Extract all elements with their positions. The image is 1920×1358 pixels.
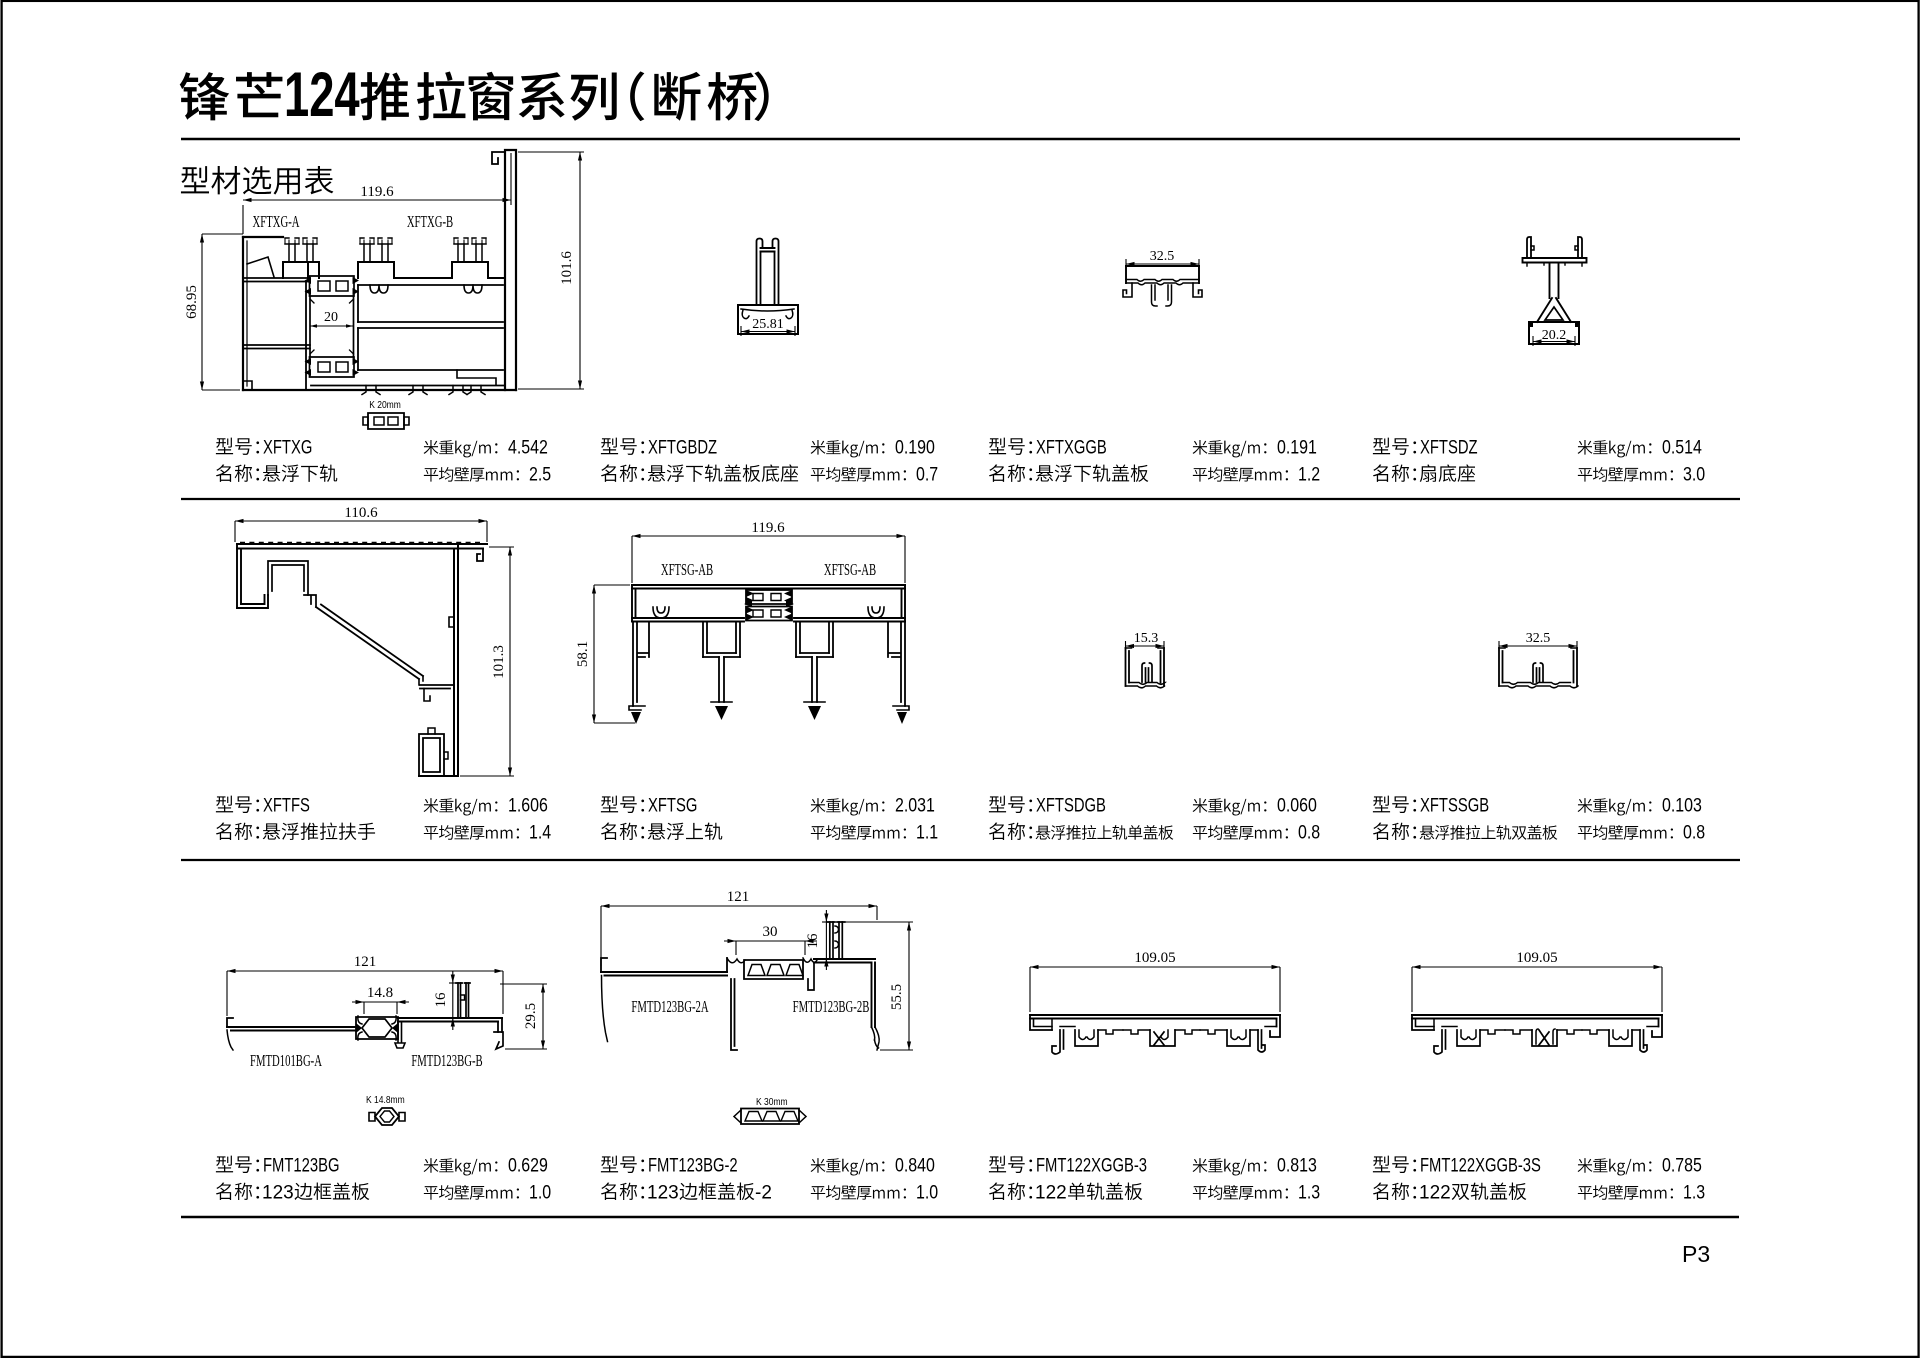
- svg-text:XFTSG-AB: XFTSG-AB: [661, 561, 713, 580]
- svg-text:119.6: 119.6: [360, 184, 394, 200]
- svg-text:XFTSG: XFTSG: [648, 795, 697, 816]
- svg-text:109.05: 109.05: [1516, 950, 1557, 966]
- svg-text:XFTFS: XFTFS: [263, 795, 310, 816]
- svg-text:101.6: 101.6: [559, 251, 575, 285]
- svg-text:2.5: 2.5: [529, 463, 551, 485]
- svg-text:101.3: 101.3: [491, 645, 507, 679]
- svg-text:P3: P3: [1682, 1241, 1710, 1267]
- svg-text:109.05: 109.05: [1134, 950, 1175, 966]
- svg-text:1.3: 1.3: [1683, 1181, 1705, 1203]
- svg-text:FMT123BG: FMT123BG: [263, 1155, 339, 1176]
- svg-text:FMT122XGGB-3: FMT122XGGB-3: [1036, 1155, 1147, 1176]
- svg-text:XFTSG-AB: XFTSG-AB: [824, 561, 876, 580]
- svg-text:2.031: 2.031: [895, 794, 935, 816]
- svg-text:XFTXG-A: XFTXG-A: [253, 213, 301, 232]
- svg-text:-2: -2: [755, 1183, 772, 1204]
- svg-text:123: 123: [647, 1183, 679, 1204]
- svg-text:FMT122XGGB-3S: FMT122XGGB-3S: [1420, 1155, 1541, 1176]
- svg-text:20: 20: [324, 310, 338, 325]
- svg-text:110.6: 110.6: [344, 505, 378, 521]
- svg-text:16: 16: [433, 992, 449, 1008]
- svg-text:0.060: 0.060: [1277, 794, 1317, 816]
- svg-text:K 30mm: K 30mm: [756, 1096, 788, 1107]
- svg-text:16: 16: [805, 933, 821, 949]
- svg-text:XFTSDZ: XFTSDZ: [1420, 437, 1478, 458]
- svg-text:121: 121: [727, 889, 750, 905]
- svg-text:1.0: 1.0: [916, 1181, 938, 1203]
- svg-text:58.1: 58.1: [575, 641, 591, 667]
- svg-text:1.1: 1.1: [916, 821, 938, 843]
- svg-text:1.0: 1.0: [529, 1181, 551, 1203]
- svg-text:0.785: 0.785: [1662, 1154, 1702, 1176]
- svg-text:32.5: 32.5: [1526, 631, 1551, 646]
- svg-text:0.813: 0.813: [1277, 1154, 1317, 1176]
- svg-text:124: 124: [284, 59, 360, 130]
- svg-text:FMTD123BG-B: FMTD123BG-B: [411, 1052, 482, 1071]
- svg-text:0.190: 0.190: [895, 436, 935, 458]
- svg-text:XFTXGGB: XFTXGGB: [1036, 437, 1107, 458]
- svg-text:XFTSSGB: XFTSSGB: [1420, 795, 1489, 816]
- svg-text:1.4: 1.4: [529, 821, 551, 843]
- svg-text:0.191: 0.191: [1277, 436, 1317, 458]
- svg-text:3.0: 3.0: [1683, 463, 1705, 485]
- svg-text:30: 30: [763, 924, 778, 940]
- svg-text:0.7: 0.7: [916, 463, 938, 485]
- svg-text:XFTGBDZ: XFTGBDZ: [648, 437, 717, 458]
- svg-text:K 20mm: K 20mm: [369, 399, 401, 410]
- svg-text:0.629: 0.629: [508, 1154, 548, 1176]
- svg-text:0.8: 0.8: [1683, 821, 1705, 843]
- svg-text:FMT123BG-2: FMT123BG-2: [648, 1155, 738, 1176]
- svg-text:K 14.8mm: K 14.8mm: [366, 1094, 405, 1105]
- svg-text:20.2: 20.2: [1542, 328, 1567, 343]
- svg-text:0.103: 0.103: [1662, 794, 1702, 816]
- svg-text:68.95: 68.95: [184, 285, 200, 319]
- svg-text:0.840: 0.840: [895, 1154, 935, 1176]
- svg-text:55.5: 55.5: [889, 984, 905, 1010]
- svg-text:4.542: 4.542: [508, 436, 548, 458]
- svg-text:29.5: 29.5: [523, 1003, 539, 1029]
- svg-text:32.5: 32.5: [1150, 249, 1175, 264]
- svg-text:25.81: 25.81: [752, 317, 784, 332]
- svg-text:FMTD101BG-A: FMTD101BG-A: [250, 1052, 322, 1071]
- svg-text:0.8: 0.8: [1298, 821, 1320, 843]
- svg-text:15.3: 15.3: [1134, 631, 1159, 646]
- svg-text:122: 122: [1419, 1183, 1451, 1204]
- svg-text:1.3: 1.3: [1298, 1181, 1320, 1203]
- svg-text:0.514: 0.514: [1662, 436, 1702, 458]
- svg-text:FMTD123BG-2A: FMTD123BG-2A: [631, 998, 709, 1017]
- svg-text:1.2: 1.2: [1298, 463, 1320, 485]
- svg-text:1.606: 1.606: [508, 794, 548, 816]
- svg-text:123: 123: [262, 1183, 294, 1204]
- svg-text:XFTXG-B: XFTXG-B: [407, 213, 453, 232]
- svg-text:119.6: 119.6: [751, 520, 785, 536]
- svg-text:XFTSDGB: XFTSDGB: [1036, 795, 1106, 816]
- svg-text:121: 121: [354, 954, 377, 970]
- svg-text:14.8: 14.8: [367, 985, 393, 1001]
- svg-text:FMTD123BG-2B: FMTD123BG-2B: [793, 998, 870, 1017]
- svg-text:XFTXG: XFTXG: [263, 437, 312, 458]
- svg-text:122: 122: [1035, 1183, 1067, 1204]
